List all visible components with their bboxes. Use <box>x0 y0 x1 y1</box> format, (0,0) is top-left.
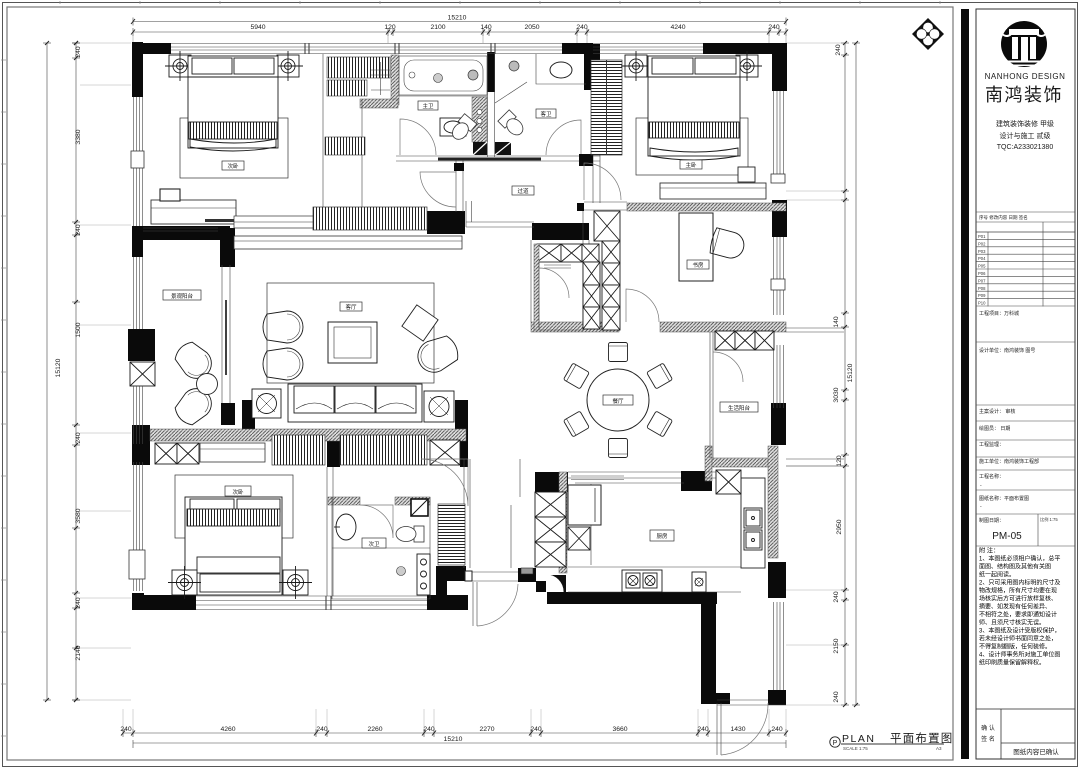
svg-text:1500: 1500 <box>75 322 82 337</box>
svg-text:1、本图纸必须相户确认，总平: 1、本图纸必须相户确认，总平 <box>979 555 1060 563</box>
svg-text:制图日期：: 制图日期： <box>979 517 1004 524</box>
svg-text:施工单位：南鸿装饰工程部: 施工单位：南鸿装饰工程部 <box>979 458 1039 465</box>
svg-text:2100: 2100 <box>430 24 445 31</box>
svg-text:240: 240 <box>835 44 842 56</box>
svg-text:15210: 15210 <box>444 736 463 743</box>
svg-text:师、且须尺寸核实无误。: 师、且须尺寸核实无误。 <box>979 619 1045 627</box>
svg-text:240: 240 <box>75 46 82 58</box>
svg-text:120: 120 <box>836 455 843 467</box>
svg-text:240: 240 <box>833 591 840 603</box>
svg-text:240: 240 <box>75 432 82 444</box>
svg-text:4240: 4240 <box>670 24 685 31</box>
svg-text:15210: 15210 <box>448 15 467 22</box>
svg-text:平面布置图: 平面布置图 <box>890 732 954 745</box>
svg-text:餐厅: 餐厅 <box>612 397 624 405</box>
svg-text:不相符之处，要求即通知设计: 不相符之处，要求即通知设计 <box>979 611 1057 619</box>
svg-text:1430: 1430 <box>730 726 745 733</box>
svg-text:A3: A3 <box>936 746 942 751</box>
svg-text:P09: P09 <box>978 293 986 298</box>
svg-text:4、设计师事务所对施工单位图: 4、设计师事务所对施工单位图 <box>979 651 1060 659</box>
svg-text:3030: 3030 <box>833 387 840 402</box>
svg-text:P07: P07 <box>978 278 986 283</box>
svg-text:PM-05: PM-05 <box>992 531 1022 542</box>
svg-text:SCALE 1:75: SCALE 1:75 <box>843 746 868 751</box>
svg-text:主卫: 主卫 <box>422 102 434 110</box>
svg-text:2270: 2270 <box>479 726 494 733</box>
svg-text:5940: 5940 <box>250 24 265 31</box>
svg-text:设计单位：南鸿装饰 图号: 设计单位：南鸿装饰 图号 <box>979 347 1035 354</box>
svg-text:主卧: 主卧 <box>685 161 697 169</box>
svg-text:南鸿装饰: 南鸿装饰 <box>985 85 1063 105</box>
svg-text:若未经设计师书面同意之处，: 若未经设计师书面同意之处， <box>979 635 1057 643</box>
svg-text:P08: P08 <box>978 286 986 291</box>
svg-text:景观阳台: 景观阳台 <box>171 292 194 300</box>
svg-text:2050: 2050 <box>524 24 539 31</box>
svg-text:240: 240 <box>423 726 435 733</box>
svg-text:15120: 15120 <box>847 363 854 382</box>
svg-text:P05: P05 <box>978 264 986 269</box>
svg-text:PLAN: PLAN <box>842 733 875 745</box>
svg-text:240: 240 <box>697 726 709 733</box>
svg-text:3、本图纸及设计受版权保护，: 3、本图纸及设计受版权保护， <box>979 627 1060 635</box>
svg-text:次卧: 次卧 <box>232 488 244 496</box>
svg-text:240: 240 <box>576 24 588 31</box>
svg-text:120: 120 <box>384 24 396 31</box>
svg-text:P01: P01 <box>978 234 986 239</box>
svg-text:面图、结构图及其他有关图: 面图、结构图及其他有关图 <box>979 563 1051 571</box>
svg-text:签 名: 签 名 <box>981 735 995 743</box>
svg-text:图纸名称：平面布置图: 图纸名称：平面布置图 <box>979 495 1029 502</box>
svg-text:工程监理：: 工程监理： <box>979 441 1004 448</box>
svg-text:确 认: 确 认 <box>981 724 995 732</box>
svg-text:240: 240 <box>833 691 840 703</box>
svg-text:次卫: 次卫 <box>368 540 380 548</box>
svg-text:不得复制翻版，任何装修。: 不得复制翻版，任何装修。 <box>979 643 1051 651</box>
svg-text:240: 240 <box>316 726 328 733</box>
svg-text:3660: 3660 <box>612 726 627 733</box>
svg-text:3580: 3580 <box>75 508 82 523</box>
svg-text:240: 240 <box>768 24 780 31</box>
svg-text:客卫: 客卫 <box>540 110 552 118</box>
svg-text:纸一起阅读。: 纸一起阅读。 <box>979 571 1015 579</box>
svg-text:场核实后方可进行放样复核、: 场核实后方可进行放样复核、 <box>979 595 1057 603</box>
svg-text:主案设计： 审核: 主案设计： 审核 <box>979 408 1015 415</box>
svg-text:书房: 书房 <box>692 261 704 269</box>
svg-text:生活阳台: 生活阳台 <box>728 404 751 412</box>
svg-text:140: 140 <box>480 24 492 31</box>
svg-text:比例 1:75: 比例 1:75 <box>1040 516 1058 523</box>
svg-text:工程项目：万科城: 工程项目：万科城 <box>979 310 1019 317</box>
svg-text:240: 240 <box>120 726 132 733</box>
svg-text:P02: P02 <box>978 241 986 246</box>
svg-text:次卧: 次卧 <box>227 162 239 170</box>
svg-text:P10: P10 <box>978 301 986 306</box>
svg-text:2140: 2140 <box>75 645 82 660</box>
svg-text:240: 240 <box>530 726 542 733</box>
svg-text:140: 140 <box>833 316 840 328</box>
svg-text:240: 240 <box>75 224 82 236</box>
svg-text:过道: 过道 <box>517 187 529 195</box>
svg-text:绘图员： 日期: 绘图员： 日期 <box>979 425 1010 432</box>
svg-text:摘要、如发现有任何差异、: 摘要、如发现有任何差异、 <box>979 603 1051 611</box>
svg-text:纸印刷质量保留解释权。: 纸印刷质量保留解释权。 <box>979 659 1045 667</box>
svg-text:建筑装饰装修 甲级: 建筑装饰装修 甲级 <box>996 119 1054 128</box>
svg-text:P06: P06 <box>978 271 986 276</box>
svg-text:P: P <box>833 740 838 747</box>
svg-text:厨房: 厨房 <box>656 532 668 540</box>
svg-text:240: 240 <box>75 597 82 609</box>
svg-text:设计与施工 贰级: 设计与施工 贰级 <box>1000 131 1051 140</box>
svg-text:图纸内容已确认: 图纸内容已确认 <box>1013 747 1059 756</box>
svg-text:客厅: 客厅 <box>345 303 357 311</box>
svg-text:2260: 2260 <box>367 726 382 733</box>
svg-text:3380: 3380 <box>75 129 82 144</box>
svg-text:序号 修改内容 日期 签名: 序号 修改内容 日期 签名 <box>979 214 1028 221</box>
svg-text:附 注：: 附 注： <box>979 547 999 555</box>
svg-text:2150: 2150 <box>833 638 840 653</box>
svg-text:NANHONG DESIGN: NANHONG DESIGN <box>985 72 1066 81</box>
svg-text:4260: 4260 <box>220 726 235 733</box>
svg-text:2950: 2950 <box>836 519 843 534</box>
svg-text:TQC:A233021380: TQC:A233021380 <box>997 144 1054 151</box>
svg-text:2、只可采用图内标明的尺寸及: 2、只可采用图内标明的尺寸及 <box>979 579 1060 587</box>
svg-text:P04: P04 <box>978 256 986 261</box>
svg-text:15120: 15120 <box>55 358 62 377</box>
svg-text:240: 240 <box>771 726 783 733</box>
svg-text:P03: P03 <box>978 249 986 254</box>
svg-text:物改规格，所有尺寸均要在现: 物改规格，所有尺寸均要在现 <box>979 587 1057 595</box>
svg-text:工程名称：: 工程名称： <box>979 473 1004 480</box>
